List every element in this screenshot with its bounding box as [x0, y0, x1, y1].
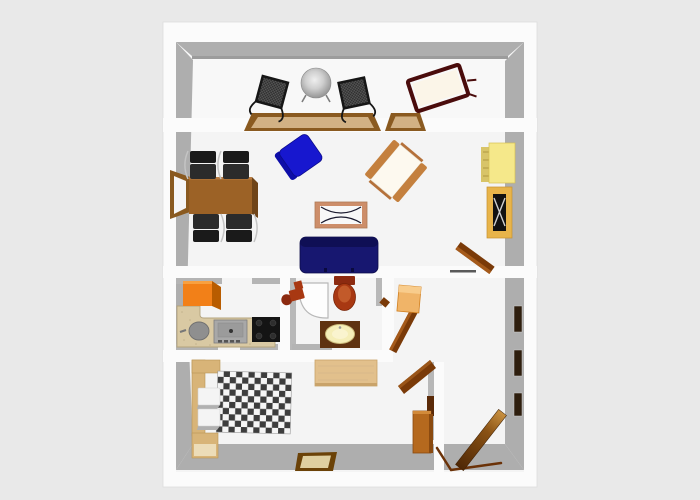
round-sink — [189, 322, 209, 340]
appliance-button — [224, 340, 228, 343]
shoe-cabinet — [397, 285, 421, 313]
sofa-seam — [324, 268, 327, 272]
floor-plan-image — [0, 0, 700, 500]
cabinet-front — [489, 143, 515, 183]
wall-panel-3 — [514, 393, 522, 416]
bed-headboard — [192, 360, 220, 373]
burner — [256, 320, 262, 326]
coffee-table-top — [320, 206, 362, 224]
picture-inner — [300, 456, 331, 469]
balcony-railing-shadow — [192, 56, 508, 59]
fridge-top-edge — [183, 281, 212, 284]
closet-side — [429, 414, 433, 453]
dining-table-edge — [252, 177, 258, 218]
wall-panel-1 — [514, 306, 522, 332]
desk-edge — [315, 383, 377, 386]
living-window-glass — [174, 176, 186, 214]
pillow-2 — [197, 409, 220, 430]
yellow-cabinet — [481, 143, 515, 183]
balcony-window-glass — [391, 117, 422, 129]
sofa-seam — [351, 268, 354, 272]
chair-back — [193, 230, 219, 242]
wall-bathroom-hallway — [382, 278, 394, 352]
pillow-shadow — [197, 426, 220, 430]
appliance-button — [230, 340, 234, 343]
chair-seat — [226, 214, 252, 229]
chair-seat — [193, 214, 219, 229]
dining-table — [189, 177, 252, 214]
chair-back — [190, 151, 216, 163]
wall-panel-2 — [514, 350, 522, 376]
fridge-front — [183, 281, 212, 306]
checkered-blanket — [216, 371, 292, 434]
chair-mesh-seat — [339, 78, 370, 109]
coffee-table — [315, 202, 367, 228]
wall-kitchen-bathroom — [280, 278, 290, 352]
sofa-backrest — [300, 237, 378, 247]
faucet — [339, 326, 342, 329]
pillow-shadow — [197, 405, 220, 409]
chair-mesh-seat — [256, 76, 288, 108]
burner — [270, 320, 276, 326]
chair-back — [226, 230, 252, 242]
floorplan-canvas — [0, 0, 700, 500]
round-metal-table — [301, 68, 331, 98]
closet-top-edge — [413, 411, 431, 414]
door-threshold — [450, 270, 476, 273]
wall-face-bathroom-west — [290, 278, 296, 352]
appliance-button — [218, 340, 222, 343]
nightstand — [192, 433, 218, 458]
chair-seat — [223, 164, 249, 179]
refrigerator — [183, 281, 221, 310]
top-wall-face — [176, 42, 524, 56]
balcony-door-glass — [251, 117, 374, 128]
toilet — [334, 276, 356, 311]
vanity-sink — [320, 321, 360, 348]
nightstand-front — [194, 444, 216, 456]
basin-inner — [332, 329, 348, 339]
chair-back — [223, 151, 249, 163]
wall-picture — [295, 452, 337, 471]
burner — [256, 333, 262, 339]
blanket — [216, 371, 292, 434]
wall-face-kitchen-right — [252, 278, 280, 284]
appliance-knob — [229, 329, 233, 333]
desk — [315, 360, 377, 386]
cooktop-surface — [252, 317, 280, 342]
tv-shelf — [487, 187, 512, 238]
cooktop — [252, 317, 280, 342]
pillow-top — [198, 388, 220, 405]
pillow-1 — [197, 388, 220, 409]
pillow-top — [198, 409, 220, 426]
toilet-seat — [338, 286, 351, 303]
appliance-button — [236, 340, 240, 343]
chair-seat — [190, 164, 216, 179]
sofa — [300, 237, 378, 273]
closet — [413, 411, 431, 453]
appliance — [214, 320, 247, 343]
burner — [270, 333, 276, 339]
